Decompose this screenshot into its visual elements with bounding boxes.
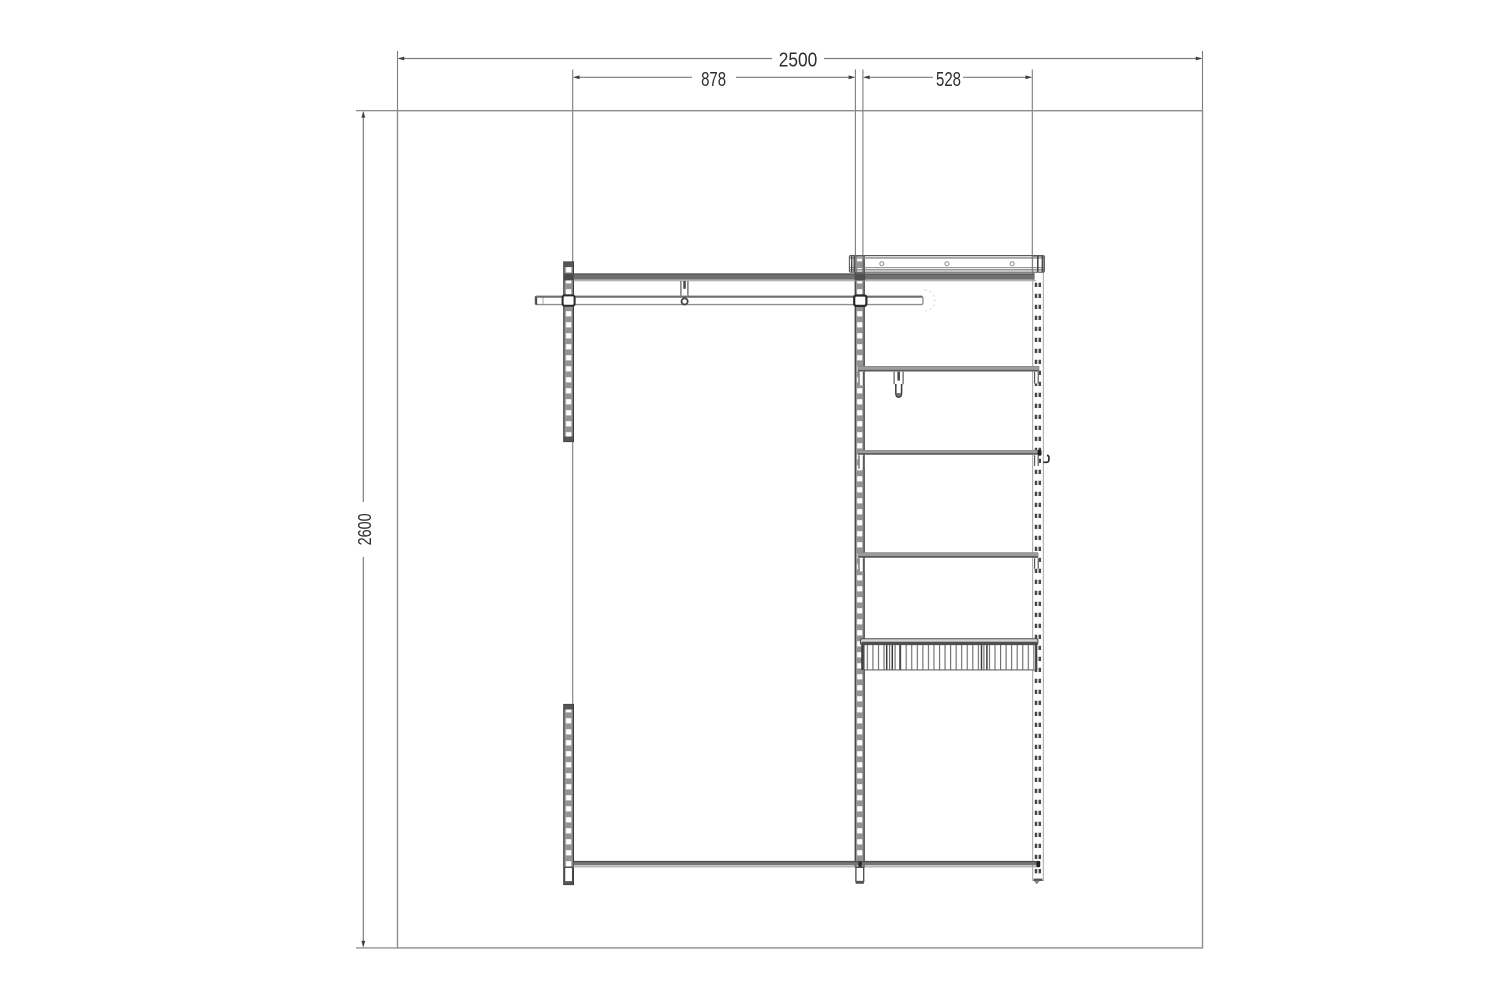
- svg-text:528: 528: [936, 69, 961, 91]
- svg-text:2500: 2500: [779, 50, 818, 72]
- svg-text:2600: 2600: [355, 513, 375, 545]
- svg-text:878: 878: [701, 69, 726, 91]
